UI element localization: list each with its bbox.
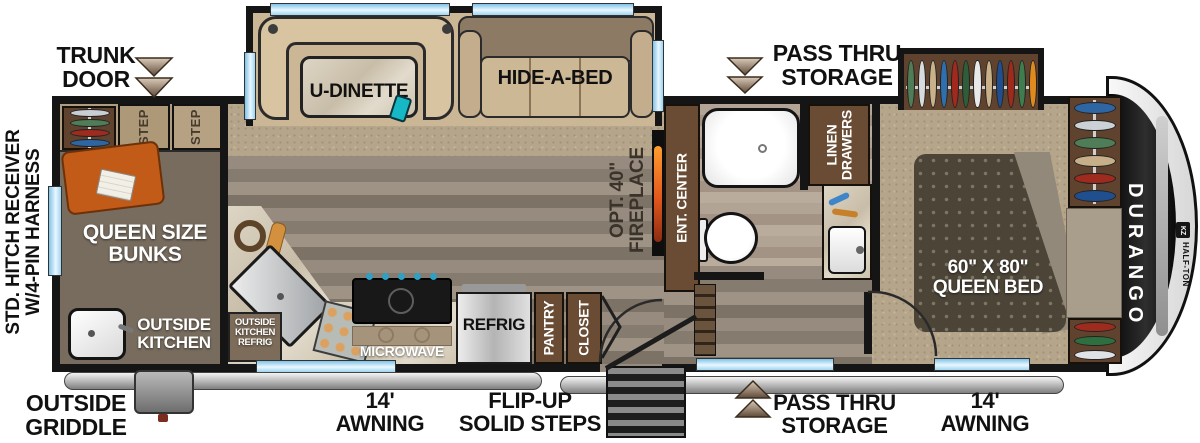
window xyxy=(934,358,1030,371)
clothes-hanger xyxy=(962,60,970,108)
burner-icon xyxy=(378,327,394,343)
wardrobe-clothes xyxy=(907,60,1037,110)
trunk-door-label: TRUNK DOOR xyxy=(44,44,148,92)
knob-icon xyxy=(430,273,437,280)
clothes-hanger xyxy=(1074,155,1116,167)
interior-wall xyxy=(694,272,764,280)
interior-wall xyxy=(800,104,808,190)
shower xyxy=(702,108,800,188)
clothes-hanger xyxy=(1074,173,1116,185)
window xyxy=(696,358,834,371)
clothes-hanger xyxy=(1074,102,1116,114)
knob-icon xyxy=(366,273,373,280)
kz-logo: KZ xyxy=(1176,222,1190,238)
fireplace-flame xyxy=(654,146,662,242)
clothes-hanger xyxy=(973,60,981,108)
queen-bunks-label: QUEEN SIZE BUNKS xyxy=(70,222,220,266)
clothes-hanger xyxy=(1074,322,1116,332)
wardrobe-clothes xyxy=(1074,322,1116,360)
clothes-hanger xyxy=(985,60,993,108)
microwave-label: MICROWAVE xyxy=(352,344,452,359)
clothes-hanger xyxy=(1074,190,1116,202)
burner-icon xyxy=(388,288,414,314)
half-ton-badge: HALF-TON xyxy=(1176,242,1190,312)
refrig-label: REFRIG xyxy=(456,316,532,334)
outside-griddle-label: OUTSIDE GRIDDLE xyxy=(20,392,132,440)
exterior-steps xyxy=(606,366,686,438)
clothes-hanger xyxy=(918,60,926,108)
interior-wall xyxy=(872,96,880,292)
pass-thru-top-arrow-icon xyxy=(728,58,762,93)
queen-bed-label: 60" X 80" QUEEN BED xyxy=(918,258,1058,298)
clothes-hanger xyxy=(1029,60,1037,108)
sink-drain xyxy=(88,330,95,337)
window xyxy=(472,3,634,16)
refrigerator-vent xyxy=(462,284,526,292)
clothes-hanger xyxy=(1007,60,1015,108)
knob-icon xyxy=(414,273,421,280)
awning-right-label: 14' AWNING xyxy=(935,390,1035,436)
toilet xyxy=(704,212,758,264)
durango-logo: DURANGO xyxy=(1120,148,1146,363)
flip-up-steps-label: FLIP-UP SOLID STEPS xyxy=(455,390,605,436)
window xyxy=(270,3,450,16)
clothes-hanger xyxy=(1074,336,1116,346)
pass-thru-top-label: PASS THRU STORAGE xyxy=(772,42,902,90)
kz-logo-text: KZ xyxy=(1180,225,1187,234)
cooktop-knobs xyxy=(366,273,442,281)
bench-bolster xyxy=(268,24,278,34)
clothes-hanger xyxy=(70,109,110,117)
sink-drain xyxy=(277,293,284,300)
floorplan-canvas: U-DINETTE HIDE-A-BED DURANGO KZ HALF-TON xyxy=(0,0,1200,443)
awning-left-label: 14' AWNING xyxy=(330,390,430,436)
clothes-hanger xyxy=(929,60,937,108)
wardrobe-clothes xyxy=(1074,102,1116,202)
bench-bolster xyxy=(442,24,452,34)
window xyxy=(652,40,664,112)
clothes-hanger xyxy=(996,60,1004,108)
clothes-hanger xyxy=(951,60,959,108)
knob-icon xyxy=(398,273,405,280)
pass-thru-bottom-label: PASS THRU STORAGE xyxy=(772,392,897,438)
knob-icon xyxy=(382,273,389,280)
clothes-hanger xyxy=(70,129,110,137)
clothes-hanger xyxy=(70,119,110,127)
clothes-hanger xyxy=(1074,350,1116,360)
window xyxy=(244,52,256,120)
clothes-hanger xyxy=(1074,137,1116,149)
front-cap-stripe xyxy=(1156,116,1168,336)
hide-a-bed-label: HIDE-A-BED xyxy=(470,68,640,89)
shower-drain-icon xyxy=(758,144,767,153)
clothes-hanger xyxy=(1018,60,1026,108)
bedroom-dresser xyxy=(1066,208,1122,318)
outside-kitchen-label: OUTSIDE KITCHEN xyxy=(128,316,220,351)
outside-kitchen-sink xyxy=(68,308,126,360)
bedroom-door-leaf xyxy=(864,292,872,354)
clothes-hanger xyxy=(940,60,948,108)
outside-kitchen-refrig-label: OUTSIDE KITCHEN REFRIG xyxy=(228,318,282,348)
outside-griddle xyxy=(134,370,194,414)
clothes-hanger xyxy=(907,60,915,108)
clothes-hanger xyxy=(1074,120,1116,132)
sink-faucet xyxy=(856,246,864,254)
burner-icon xyxy=(414,327,430,343)
wardrobe-clothes xyxy=(70,109,110,147)
griddle-knob xyxy=(158,414,168,422)
interior-wall xyxy=(220,96,228,364)
trivet-ring xyxy=(234,220,266,252)
interior-steps xyxy=(694,284,716,356)
window xyxy=(48,186,62,276)
